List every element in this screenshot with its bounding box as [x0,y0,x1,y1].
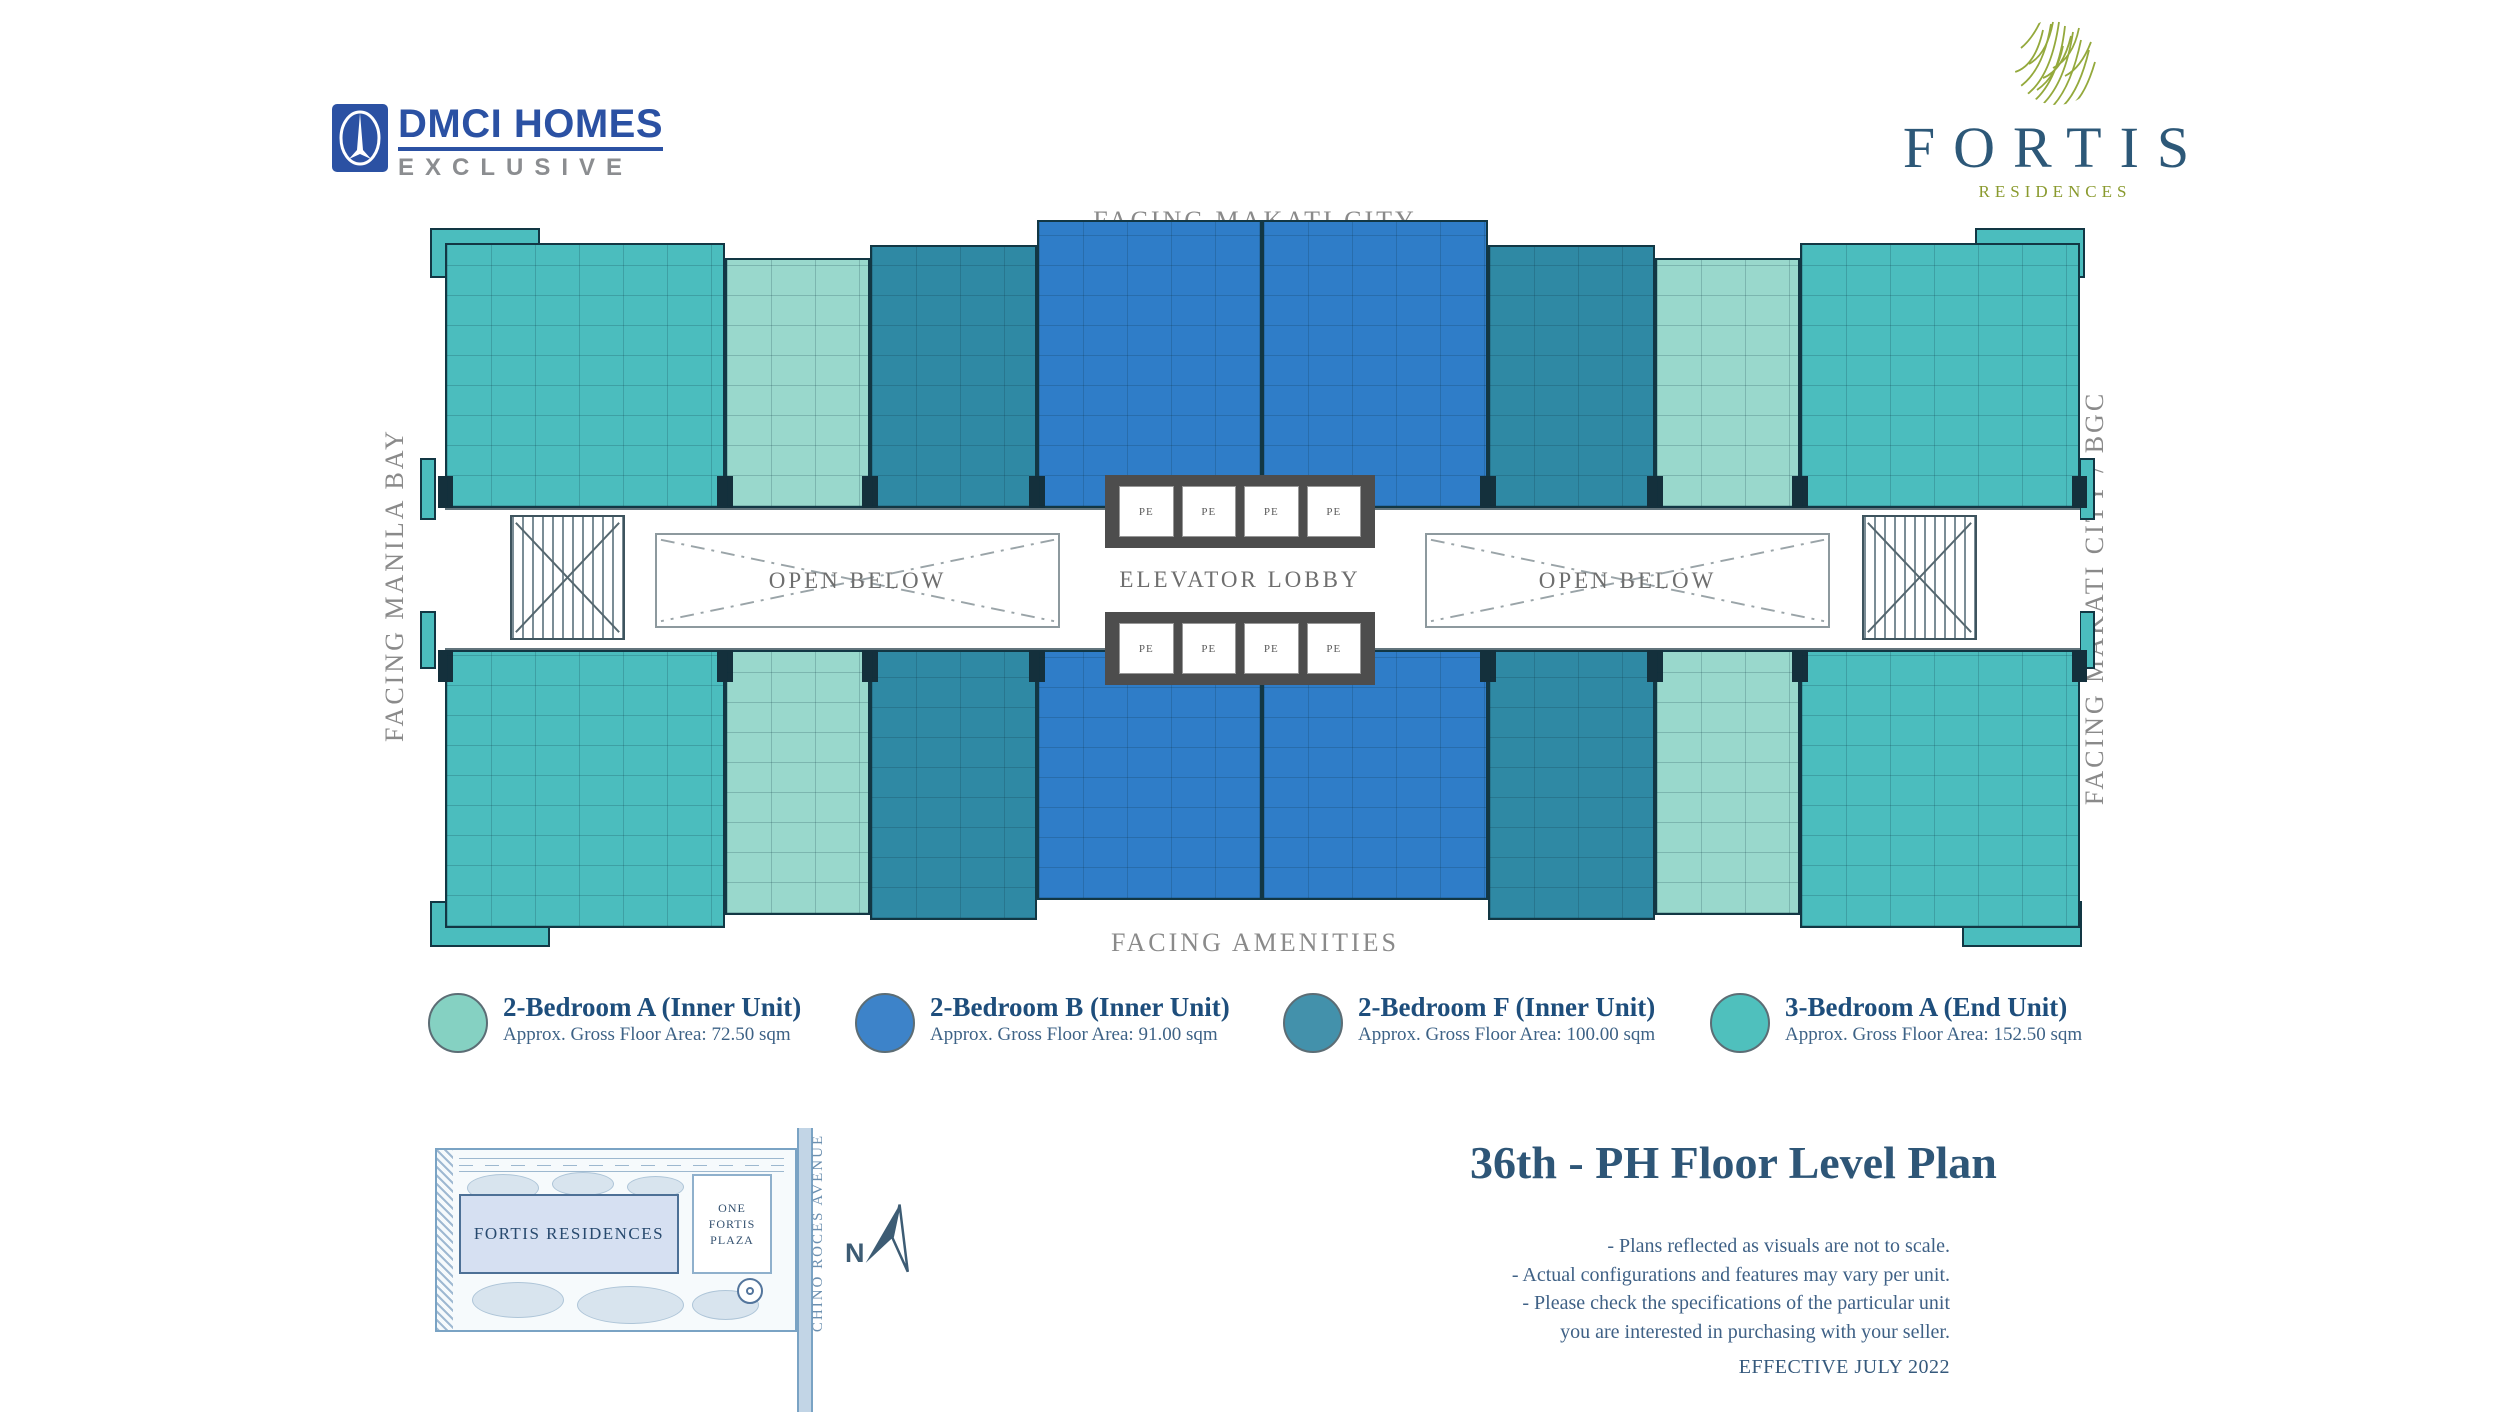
end-unit-bay [420,611,436,669]
stairs-icon [510,515,625,640]
facing-makati-bgc-label: FACING MAKATI CITY / BGC [2080,368,2120,828]
elevator-pe: PE [1307,623,1362,674]
open-below-right: OPEN BELOW [1425,533,1830,628]
unit-2br-f-inner [870,245,1037,508]
site-internal-road [459,1158,784,1172]
unit-3br-a-end [445,243,725,508]
legend-area: Approx. Gross Floor Area: 152.50 sqm [1785,1024,2082,1046]
dmci-emblem-icon [332,104,388,172]
dmci-logo: DMCI HOMES EXCLUSIVE [332,104,663,182]
legend-swatch-2br-a [428,993,488,1053]
unit-3br-a-end [445,650,725,928]
fortis-residences-footprint: FORTIS RESIDENCES [459,1194,679,1274]
elevator-pe: PE [1182,486,1237,537]
legend-name: 2-Bedroom F (Inner Unit) [1358,993,1655,1023]
plan-note: - Please check the specifications of the… [1380,1289,1950,1318]
facing-manila-bay-label: FACING MANILA BAY [380,385,420,785]
landscape-blob [552,1172,614,1196]
legend-item-2br-a: 2-Bedroom A (Inner Unit) Approx. Gross F… [428,993,801,1053]
plan-note: - Actual configurations and features may… [1380,1261,1950,1290]
legend-area: Approx. Gross Floor Area: 72.50 sqm [503,1024,801,1046]
unit-2br-b-inner [1262,650,1488,900]
unit-2br-a-inner [1655,258,1800,508]
page: { "branding": { "dmci_name": "DMCI HOMES… [0,0,2520,1418]
end-unit-bay [420,458,436,520]
neighbor-label: PLAZA [710,1232,754,1248]
unit-3br-a-end [1800,243,2080,508]
unit-2br-b-inner [1037,650,1262,900]
landscape-blob [577,1286,684,1324]
dmci-name: DMCI HOMES [398,104,663,151]
legend-item-2br-f: 2-Bedroom F (Inner Unit) Approx. Gross F… [1283,993,1655,1053]
dmci-exclusive-label: EXCLUSIVE [398,154,663,182]
elevator-pe: PE [1307,486,1362,537]
elevator-lobby-label: ELEVATOR LOBBY [1080,563,1400,597]
unit-2br-a-inner [1655,650,1800,915]
floor-level-title: 36th - PH Floor Level Plan [1470,1136,1970,1189]
site-hatch-edge [437,1150,453,1330]
fortis-wordmark: FORTIS [1885,114,2225,181]
landscape-blob [472,1282,564,1318]
plan-note: you are interested in purchasing with yo… [1380,1318,1950,1347]
elevator-bank-top: PE PE PE PE [1105,475,1375,548]
elevator-pe: PE [1244,486,1299,537]
legend-area: Approx. Gross Floor Area: 91.00 sqm [930,1024,1230,1046]
legend-item-2br-b: 2-Bedroom B (Inner Unit) Approx. Gross F… [855,993,1230,1053]
dmci-wordmark: DMCI HOMES EXCLUSIVE [398,104,663,182]
unit-2br-f-inner [1488,245,1655,508]
legend-swatch-2br-b [855,993,915,1053]
unit-2br-f-inner [870,650,1037,920]
legend-swatch-2br-f [1283,993,1343,1053]
one-fortis-plaza-footprint: ONE FORTIS PLAZA [692,1174,772,1274]
fortis-residences-label: RESIDENCES [1885,182,2225,202]
legend-area: Approx. Gross Floor Area: 100.00 sqm [1358,1024,1655,1046]
neighbor-label: FORTIS [709,1216,756,1232]
north-arrow-icon [859,1193,928,1278]
open-below-left: OPEN BELOW [655,533,1060,628]
legend-swatch-3br-a [1710,993,1770,1053]
legend-item-3br-a: 3-Bedroom A (End Unit) Approx. Gross Flo… [1710,993,2082,1053]
elevator-bank-bottom: PE PE PE PE [1105,612,1375,685]
legend-name: 2-Bedroom B (Inner Unit) [930,993,1230,1023]
unit-2br-b-inner [1262,220,1488,508]
unit-2br-b-inner [1037,220,1262,508]
unit-2br-f-inner [1488,650,1655,920]
unit-3br-a-end [1800,650,2080,928]
unit-2br-a-inner [725,650,870,915]
fortis-leaf-icon [2013,16,2101,108]
stairs-icon [1862,515,1977,640]
elevator-pe: PE [1182,623,1237,674]
plan-notes: - Plans reflected as visuals are not to … [1380,1232,1950,1346]
street-label: CHINO ROCES AVENUE [810,1133,846,1333]
elevator-pe: PE [1119,623,1174,674]
site-map: FORTIS RESIDENCES ONE FORTIS PLAZA [435,1148,797,1332]
legend-name: 3-Bedroom A (End Unit) [1785,993,2082,1023]
plan-note: - Plans reflected as visuals are not to … [1380,1232,1950,1261]
unit-2br-a-inner [725,258,870,508]
elevator-pe: PE [1244,623,1299,674]
effective-date-label: EFFECTIVE JULY 2022 [1380,1356,1950,1379]
open-below-label: OPEN BELOW [1427,535,1828,626]
roundabout-icon [737,1278,763,1304]
floor-plan: OPEN BELOW OPEN BELOW PE PE PE PE PE PE … [430,215,2085,960]
neighbor-label: ONE [718,1200,746,1216]
legend-name: 2-Bedroom A (Inner Unit) [503,993,801,1023]
open-below-label: OPEN BELOW [657,535,1058,626]
elevator-pe: PE [1119,486,1174,537]
